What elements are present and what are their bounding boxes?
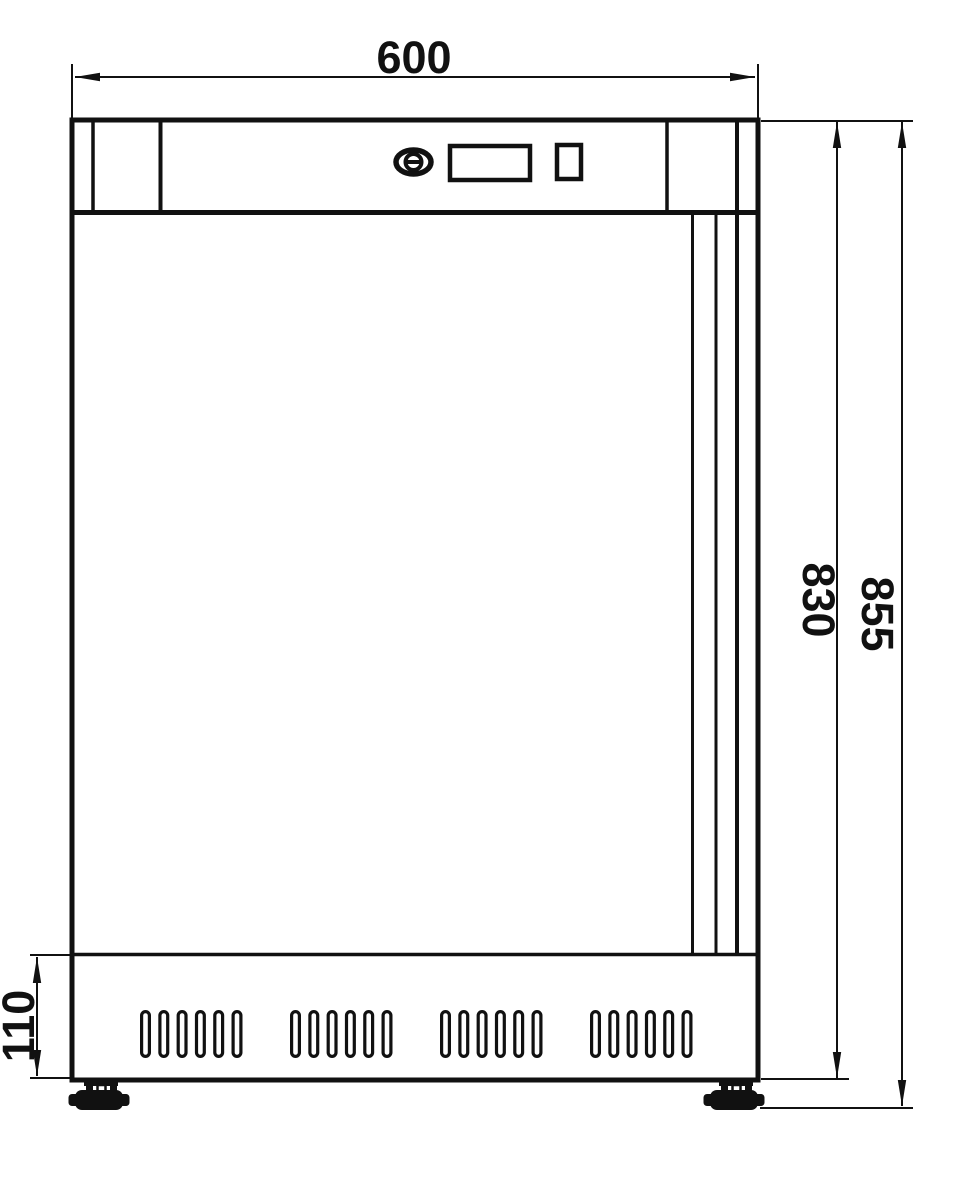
power-switch	[557, 145, 581, 179]
cabinet-outline	[72, 120, 758, 1080]
vent-slot	[460, 1012, 468, 1057]
vent-slot	[310, 1012, 318, 1057]
vent-slot	[178, 1012, 186, 1057]
vent-slot	[292, 1012, 300, 1057]
vent-slot	[197, 1012, 205, 1057]
display-window	[450, 146, 530, 180]
vent-slot	[683, 1012, 691, 1057]
vent-slot	[383, 1012, 391, 1057]
vent-slot	[442, 1012, 450, 1057]
dimension-label-width: 600	[376, 32, 451, 83]
vent-slot	[142, 1012, 150, 1057]
vent-slot	[478, 1012, 486, 1057]
vent-slot	[515, 1012, 523, 1057]
vent-slot	[647, 1012, 655, 1057]
drawing-svg: 600 830 855 110	[0, 0, 970, 1200]
vent-slot	[347, 1012, 355, 1057]
vent-slot	[215, 1012, 223, 1057]
dimension-label-total-height: 855	[852, 576, 903, 651]
vent-slot	[665, 1012, 673, 1057]
cabinet	[69, 120, 765, 1110]
vent-slot	[533, 1012, 541, 1057]
vent-slot	[497, 1012, 505, 1057]
vent-slot	[610, 1012, 618, 1057]
vent-slot	[592, 1012, 600, 1057]
vent-slot	[628, 1012, 636, 1057]
dimension-label-body-height: 830	[793, 562, 844, 637]
vent-slot	[328, 1012, 336, 1057]
vent-slot	[365, 1012, 373, 1057]
vent-slot	[160, 1012, 168, 1057]
technical-drawing-page: 600 830 855 110	[0, 0, 970, 1200]
dimension-label-plinth-height: 110	[0, 990, 44, 1063]
vent-slot	[233, 1012, 241, 1057]
